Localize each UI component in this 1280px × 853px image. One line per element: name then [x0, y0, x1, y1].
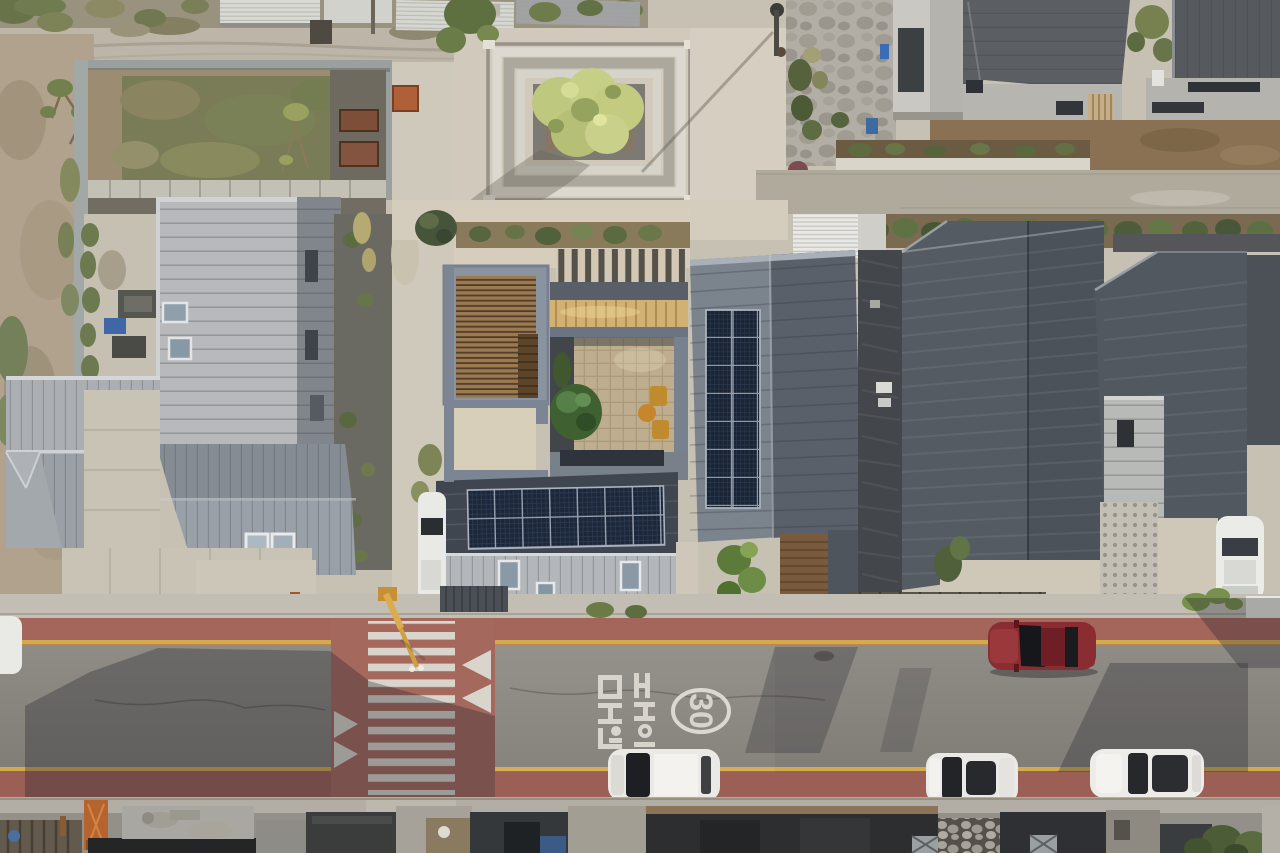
- svg-text:30: 30: [683, 693, 719, 729]
